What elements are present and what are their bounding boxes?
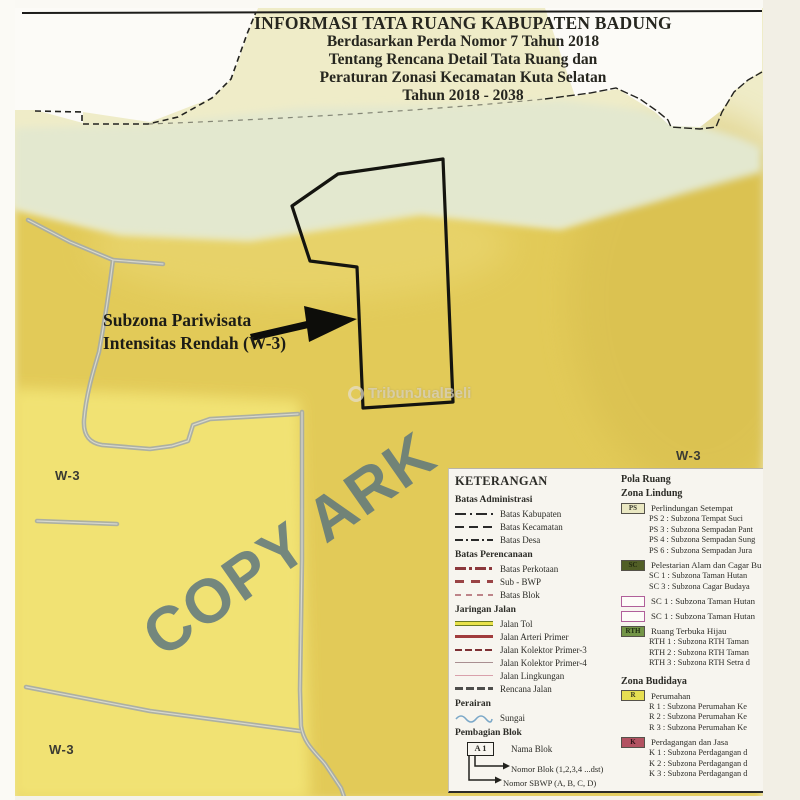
line-symbol-batas-desa xyxy=(455,539,493,541)
legend-left-column: Batas Administrasi Batas Kabupaten Batas… xyxy=(455,491,621,792)
legend-label: Jalan Tol xyxy=(500,619,532,629)
legend-right-column: Pola Ruang Zona Lindung PS Perlindungan … xyxy=(621,471,763,780)
swatch-ps: PS xyxy=(621,503,645,514)
legend-label: Batas Blok xyxy=(500,590,540,600)
photo-watermark-logo-icon xyxy=(348,386,364,402)
legend-subitem: K 3 : Subzona Perdagangan d xyxy=(649,769,763,780)
legend-subitem: K 1 : Subzona Perdagangan d xyxy=(649,748,763,759)
legend-group-ps: PS Perlindungan Setempat xyxy=(621,502,763,514)
legend-heading-pola-ruang: Pola Ruang xyxy=(621,474,763,485)
legend-label: Pelestarian Alam dan Cagar Bu xyxy=(651,560,761,570)
legend-label: Nomor SBWP (A, B, C, D) xyxy=(503,778,596,788)
legend-row: Batas Desa xyxy=(455,533,621,546)
legend-label: Sungai xyxy=(500,713,525,723)
zoning-map-photo: INFORMASI TATA RUANG KABUPATEN BADUNG Be… xyxy=(0,0,800,800)
legend-group-k: K Perdagangan dan Jasa xyxy=(621,736,763,748)
swatch-sc-outline xyxy=(621,596,645,607)
photo-edge-bottom xyxy=(15,796,763,800)
map-title-block: INFORMASI TATA RUANG KABUPATEN BADUNG Be… xyxy=(168,13,758,105)
legend-subitem: PS 4 : Subzona Sempadan Sung xyxy=(649,535,763,546)
legend-group-sc-outline-1: SC 1 : Subzona Taman Hutan xyxy=(621,595,763,607)
legend-label: SC 1 : Subzona Taman Hutan xyxy=(651,596,755,606)
legend-label: Jalan Kolektor Primer-4 xyxy=(500,658,587,668)
legend-heading-zona-lindung: Zona Lindung xyxy=(621,488,763,499)
zone-label-w3-right: W-3 xyxy=(676,448,701,463)
legend-label: SC 1 : Subzona Taman Hutan xyxy=(651,611,755,621)
legend-subitem: PS 2 : Subzona Tempat Suci xyxy=(649,514,763,525)
legend-title: KETERANGAN xyxy=(455,474,548,489)
line-symbol-jalan-kolektor-primer-3 xyxy=(455,649,493,651)
legend-row: Jalan Kolektor Primer-3 xyxy=(455,643,621,656)
legend-row: Jalan Arteri Primer xyxy=(455,630,621,643)
line-symbol-rencana-jalan xyxy=(455,687,493,690)
legend-group-rth: RTH Ruang Terbuka Hijau xyxy=(621,625,763,637)
swatch-r: R xyxy=(621,690,645,701)
legend-label: Perdagangan dan Jasa xyxy=(651,737,728,747)
legend-heading-batas-administrasi: Batas Administrasi xyxy=(455,495,621,505)
map-title-line3: Tentang Rencana Detail Tata Ruang dan xyxy=(168,51,758,69)
legend-heading-pembagian-blok: Pembagian Blok xyxy=(455,728,621,738)
line-symbol-batas-kabupaten xyxy=(455,513,493,515)
legend-subitem: SC 1 : Subzona Taman Hutan xyxy=(649,571,763,582)
legend-row: Jalan Lingkungan xyxy=(455,669,621,682)
legend-subitem: R 2 : Subzona Perumahan Ke xyxy=(649,712,763,723)
legend-label: Perlindungan Setempat xyxy=(651,503,733,513)
legend-row: Batas Kecamatan xyxy=(455,520,621,533)
legend-row: Batas Blok xyxy=(455,588,621,601)
legend-label: Nama Blok xyxy=(511,744,552,754)
line-symbol-jalan-tol xyxy=(455,621,493,626)
legend-label: Batas Desa xyxy=(500,535,540,545)
legend-subitem: K 2 : Subzona Perdagangan d xyxy=(649,759,763,770)
zone-label-w3-left: W-3 xyxy=(55,468,80,483)
parcel-label-line2: Intensitas Rendah (W-3) xyxy=(103,332,286,355)
legend-subitem: RTH 1 : Subzona RTH Taman xyxy=(649,637,763,648)
swatch-sc: SC xyxy=(621,560,645,571)
photo-edge-left xyxy=(0,0,15,800)
legend-panel: KETERANGAN Batas Administrasi Batas Kabu… xyxy=(448,468,763,793)
legend-label: Jalan Kolektor Primer-3 xyxy=(500,645,587,655)
legend-label: Jalan Lingkungan xyxy=(500,671,564,681)
line-symbol-batas-kecamatan xyxy=(455,526,493,528)
legend-label: Rencana Jalan xyxy=(500,684,552,694)
legend-row: Batas Kabupaten xyxy=(455,507,621,520)
legend-subitem: R 3 : Subzona Perumahan Ke xyxy=(649,723,763,734)
map-title-line1: INFORMASI TATA RUANG KABUPATEN BADUNG xyxy=(168,13,758,33)
legend-row: Sungai xyxy=(455,711,621,724)
legend-group-r: R Perumahan xyxy=(621,690,763,702)
legend-heading-jaringan-jalan: Jaringan Jalan xyxy=(455,605,621,615)
parcel-label-line1: Subzona Pariwisata xyxy=(103,309,286,332)
legend-group-sc: SC Pelestarian Alam dan Cagar Bu xyxy=(621,559,763,571)
legend-row: Sub - BWP xyxy=(455,575,621,588)
swatch-rth: RTH xyxy=(621,626,645,637)
legend-label: Ruang Terbuka Hijau xyxy=(651,626,726,636)
legend-row: Batas Perkotaan xyxy=(455,562,621,575)
legend-label: Batas Perkotaan xyxy=(500,564,558,574)
line-symbol-batas-perkotaan xyxy=(455,567,493,571)
legend-subitem: R 1 : Subzona Perumahan Ke xyxy=(649,702,763,713)
parcel-label: Subzona Pariwisata Intensitas Rendah (W-… xyxy=(103,309,286,355)
legend-row: Jalan Kolektor Primer-4 xyxy=(455,656,621,669)
line-symbol-batas-blok xyxy=(455,594,493,596)
legend-group-sc-outline-2: SC 1 : Subzona Taman Hutan xyxy=(621,610,763,622)
line-symbol-jalan-arteri-primer xyxy=(455,635,493,639)
legend-heading-zona-budidaya: Zona Budidaya xyxy=(621,676,763,687)
legend-heading-batas-perencanaan: Batas Perencanaan xyxy=(455,550,621,560)
legend-label: Batas Kabupaten xyxy=(500,509,561,519)
legend-subitem: SC 3 : Subzona Cagar Budaya xyxy=(649,582,763,593)
legend-heading-perairan: Perairan xyxy=(455,699,621,709)
legend-label: Jalan Arteri Primer xyxy=(500,632,568,642)
legend-label: Perumahan xyxy=(651,691,691,701)
legend-subitem: RTH 3 : Subzona RTH Setra d xyxy=(649,658,763,669)
legend-subitem: PS 3 : Subzona Sempadan Pant xyxy=(649,525,763,536)
map-title-line2: Berdasarkan Perda Nomor 7 Tahun 2018 xyxy=(168,33,758,51)
map-title-line5: Tahun 2018 - 2038 xyxy=(168,87,758,105)
legend-label: Nomor Blok (1,2,3,4 ...dst) xyxy=(511,764,603,774)
line-symbol-sungai xyxy=(455,713,493,723)
line-symbol-jalan-lingkungan xyxy=(455,675,493,677)
photo-edge-right xyxy=(763,0,800,800)
legend-label: Batas Kecamatan xyxy=(500,522,563,532)
legend-subitem: PS 6 : Subzona Sempadan Jura xyxy=(649,546,763,557)
map-title-line4: Peraturan Zonasi Kecamatan Kuta Selatan xyxy=(168,69,758,87)
legend-row: Rencana Jalan xyxy=(455,682,621,695)
swatch-k: K xyxy=(621,737,645,748)
line-symbol-jalan-kolektor-primer-4 xyxy=(455,662,493,664)
photo-watermark: TribunJualBeli xyxy=(348,385,471,402)
line-symbol-sub-bwp xyxy=(455,580,493,583)
legend-subitem: RTH 2 : Subzona RTH Taman xyxy=(649,648,763,659)
swatch-sc-outline xyxy=(621,611,645,622)
legend-row: Jalan Tol xyxy=(455,617,621,630)
block-code-symbol: A 1 xyxy=(467,742,494,756)
zone-label-w3-bottom: W-3 xyxy=(49,742,74,757)
legend-label: Sub - BWP xyxy=(500,577,541,587)
block-naming-diagram: A 1 Nama Blok Nomor Blok (1,2,3,4 ...dst… xyxy=(455,740,621,792)
